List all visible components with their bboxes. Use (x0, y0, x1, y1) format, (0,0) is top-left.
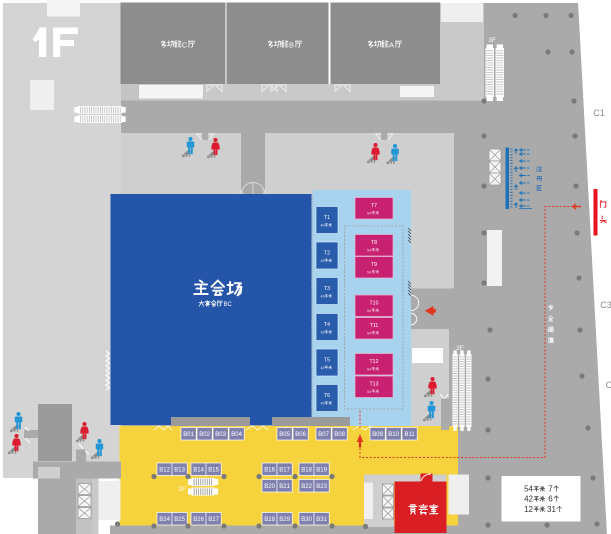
svg-text:54: 54 (367, 309, 371, 313)
svg-text:B29: B29 (279, 517, 290, 523)
svg-text:B08: B08 (334, 432, 345, 438)
svg-text:B03: B03 (215, 432, 226, 438)
svg-text:B28: B28 (264, 517, 275, 523)
svg-text:C1: C1 (593, 108, 605, 118)
svg-text:B12: B12 (159, 468, 170, 474)
svg-text:T11: T11 (370, 323, 379, 329)
svg-text:T3: T3 (324, 286, 330, 292)
svg-text:54: 54 (524, 485, 533, 494)
svg-text:42: 42 (321, 295, 325, 299)
svg-text:T4: T4 (324, 322, 330, 328)
svg-text:B18: B18 (301, 468, 312, 474)
svg-text:T10: T10 (370, 301, 379, 307)
svg-text:54: 54 (367, 367, 371, 371)
svg-text:B17: B17 (279, 468, 290, 474)
svg-text:B31: B31 (316, 517, 327, 523)
svg-text:B11: B11 (404, 432, 415, 438)
svg-text:B10: B10 (388, 432, 399, 438)
svg-text:54: 54 (367, 211, 371, 215)
svg-text:B14: B14 (193, 468, 204, 474)
svg-text:BC: BC (224, 302, 233, 308)
svg-text:B20: B20 (264, 484, 275, 490)
svg-text:54: 54 (367, 390, 371, 394)
svg-text:12: 12 (524, 505, 533, 514)
svg-text:T8: T8 (371, 240, 377, 246)
svg-text:B16: B16 (264, 468, 275, 474)
svg-text:B22: B22 (301, 484, 312, 490)
svg-text:C: C (182, 40, 188, 49)
svg-text:B21: B21 (279, 484, 290, 490)
svg-text:42: 42 (321, 259, 325, 263)
svg-text:B19: B19 (316, 468, 327, 474)
svg-text:2F: 2F (456, 345, 464, 352)
svg-text:T12: T12 (370, 359, 379, 365)
svg-text:42: 42 (321, 331, 325, 335)
svg-text:B25: B25 (174, 517, 185, 523)
svg-text:T1: T1 (324, 215, 330, 221)
svg-text:T9: T9 (371, 262, 377, 268)
svg-text:B24: B24 (159, 517, 170, 523)
svg-text:31: 31 (547, 505, 556, 514)
svg-text:T5: T5 (324, 358, 330, 364)
svg-text:C3: C3 (600, 300, 611, 310)
svg-text:B06: B06 (295, 432, 306, 438)
svg-text:B02: B02 (199, 432, 210, 438)
svg-text:C: C (606, 380, 611, 390)
svg-text:B07: B07 (318, 432, 329, 438)
svg-text:6: 6 (548, 495, 553, 504)
svg-text:T2: T2 (324, 251, 330, 257)
svg-text:42: 42 (321, 224, 325, 228)
svg-text:T13: T13 (370, 382, 379, 388)
svg-text:2F: 2F (178, 486, 186, 493)
svg-text:B30: B30 (301, 517, 312, 523)
svg-text:B05: B05 (279, 432, 290, 438)
svg-text:42: 42 (321, 402, 325, 406)
svg-text:A: A (389, 40, 394, 49)
svg-text:B09: B09 (372, 432, 383, 438)
svg-text:3F: 3F (488, 37, 496, 44)
svg-text:42: 42 (524, 495, 533, 504)
svg-text:54: 54 (367, 331, 371, 335)
svg-text:B23: B23 (316, 484, 327, 490)
svg-text:B13: B13 (174, 468, 185, 474)
svg-text:B15: B15 (208, 468, 219, 474)
svg-text:B26: B26 (193, 517, 204, 523)
svg-text:B04: B04 (231, 432, 242, 438)
svg-text:42: 42 (321, 366, 325, 370)
svg-text:B27: B27 (208, 517, 219, 523)
svg-text:54: 54 (367, 248, 371, 252)
svg-text:T6: T6 (324, 393, 330, 399)
svg-text:54: 54 (367, 270, 371, 274)
svg-text:T7: T7 (371, 203, 377, 209)
svg-text:7: 7 (548, 485, 553, 494)
svg-text:B01: B01 (183, 432, 194, 438)
svg-text:B: B (289, 40, 294, 49)
